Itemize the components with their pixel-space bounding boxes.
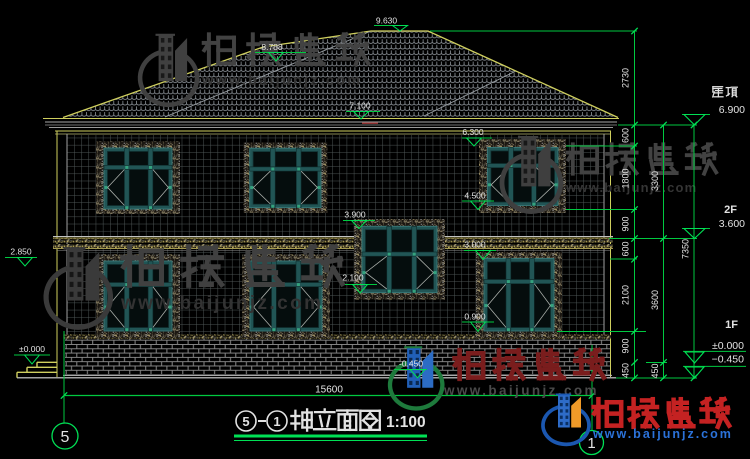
svg-text:0.900: 0.900: [464, 312, 486, 322]
svg-text:1: 1: [273, 414, 280, 429]
svg-text:7350: 7350: [681, 239, 691, 259]
svg-text:900: 900: [621, 216, 631, 231]
svg-text:450: 450: [621, 363, 631, 378]
svg-text:6.900: 6.900: [719, 104, 745, 116]
svg-text:±0.000: ±0.000: [19, 344, 45, 354]
svg-text:9.630: 9.630: [376, 16, 398, 26]
svg-text:3.900: 3.900: [344, 210, 366, 220]
svg-text:www.baijunjz.com: www.baijunjz.com: [120, 293, 323, 314]
svg-text:2.850: 2.850: [10, 247, 32, 257]
svg-text:4.500: 4.500: [464, 191, 486, 201]
svg-text:www.baijunjz.com: www.baijunjz.com: [592, 427, 733, 441]
svg-text:7.100: 7.100: [349, 101, 371, 111]
svg-text:600: 600: [621, 241, 631, 256]
svg-text:5: 5: [61, 429, 70, 446]
svg-text:www.baijunjz.com: www.baijunjz.com: [201, 73, 362, 89]
svg-text:2F: 2F: [724, 204, 737, 216]
svg-text:3600: 3600: [650, 290, 660, 310]
svg-text:−0.450: −0.450: [712, 354, 745, 366]
svg-text:600: 600: [621, 128, 631, 143]
svg-text:5: 5: [242, 414, 249, 429]
svg-text:6.300: 6.300: [462, 127, 484, 137]
svg-text:www.baijunjz.com: www.baijunjz.com: [565, 180, 697, 195]
svg-text:2730: 2730: [621, 68, 631, 88]
svg-text:1F: 1F: [725, 319, 738, 331]
svg-text:2.100: 2.100: [342, 273, 364, 283]
svg-text:450: 450: [650, 363, 660, 378]
svg-text:15600: 15600: [315, 385, 343, 396]
svg-text:3.600: 3.600: [719, 218, 745, 230]
svg-text:900: 900: [621, 338, 631, 353]
svg-text:1:100: 1:100: [386, 414, 426, 431]
svg-text:3300: 3300: [650, 171, 660, 191]
svg-text:3.000: 3.000: [464, 240, 486, 250]
svg-text:8.788: 8.788: [261, 42, 283, 52]
svg-text:www.baijunjz.com: www.baijunjz.com: [443, 383, 599, 398]
svg-text:1800: 1800: [621, 168, 631, 188]
svg-text:2100: 2100: [621, 285, 631, 305]
svg-text:-0.450: -0.450: [399, 359, 423, 369]
svg-text:±0.000: ±0.000: [712, 340, 744, 352]
